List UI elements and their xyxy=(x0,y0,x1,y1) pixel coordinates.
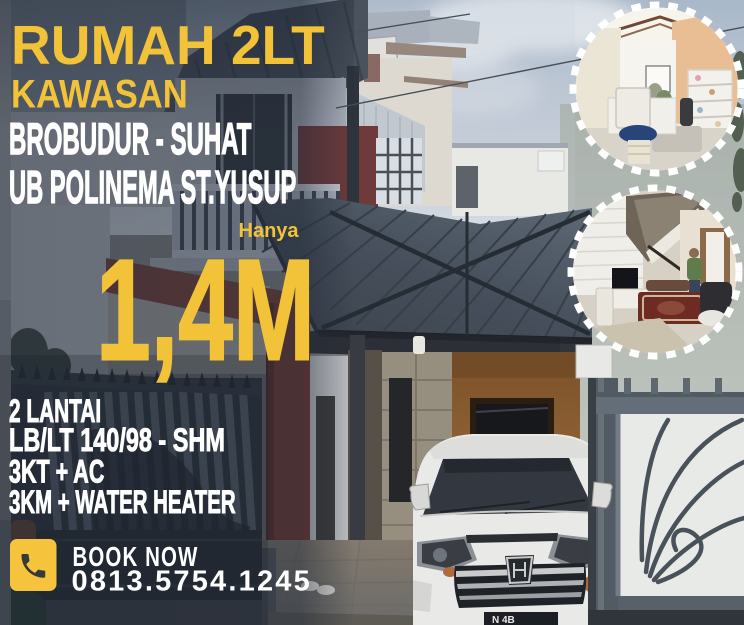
svg-text:N 4B: N 4B xyxy=(492,615,515,625)
svg-text:KAWASAN: KAWASAN xyxy=(11,71,188,116)
svg-text:UB POLINEMA ST.YUSUP: UB POLINEMA ST.YUSUP xyxy=(9,162,296,214)
svg-text:3KM + WATER HEATER: 3KM + WATER HEATER xyxy=(9,484,236,520)
svg-text:1,4M: 1,4M xyxy=(96,230,315,391)
svg-text:RUMAH 2LT: RUMAH 2LT xyxy=(11,14,325,76)
svg-text:BROBUDUR - SUHAT: BROBUDUR - SUHAT xyxy=(9,114,252,164)
svg-text:0813.5754.1245: 0813.5754.1245 xyxy=(72,566,312,598)
